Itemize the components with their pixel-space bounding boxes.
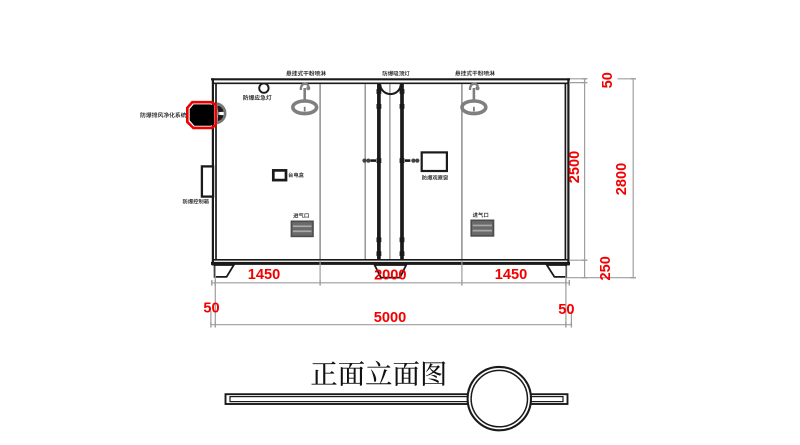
svg-text:5000: 5000 xyxy=(374,310,406,326)
svg-text:50: 50 xyxy=(203,300,219,316)
svg-text:1450: 1450 xyxy=(495,267,527,283)
svg-text:2500: 2500 xyxy=(567,151,583,183)
svg-text:1450: 1450 xyxy=(248,267,280,283)
svg-text:50: 50 xyxy=(600,72,616,88)
svg-text:2000: 2000 xyxy=(374,268,406,284)
svg-text:50: 50 xyxy=(558,302,574,318)
svg-text:2800: 2800 xyxy=(614,163,630,195)
svg-text:250: 250 xyxy=(598,256,614,280)
